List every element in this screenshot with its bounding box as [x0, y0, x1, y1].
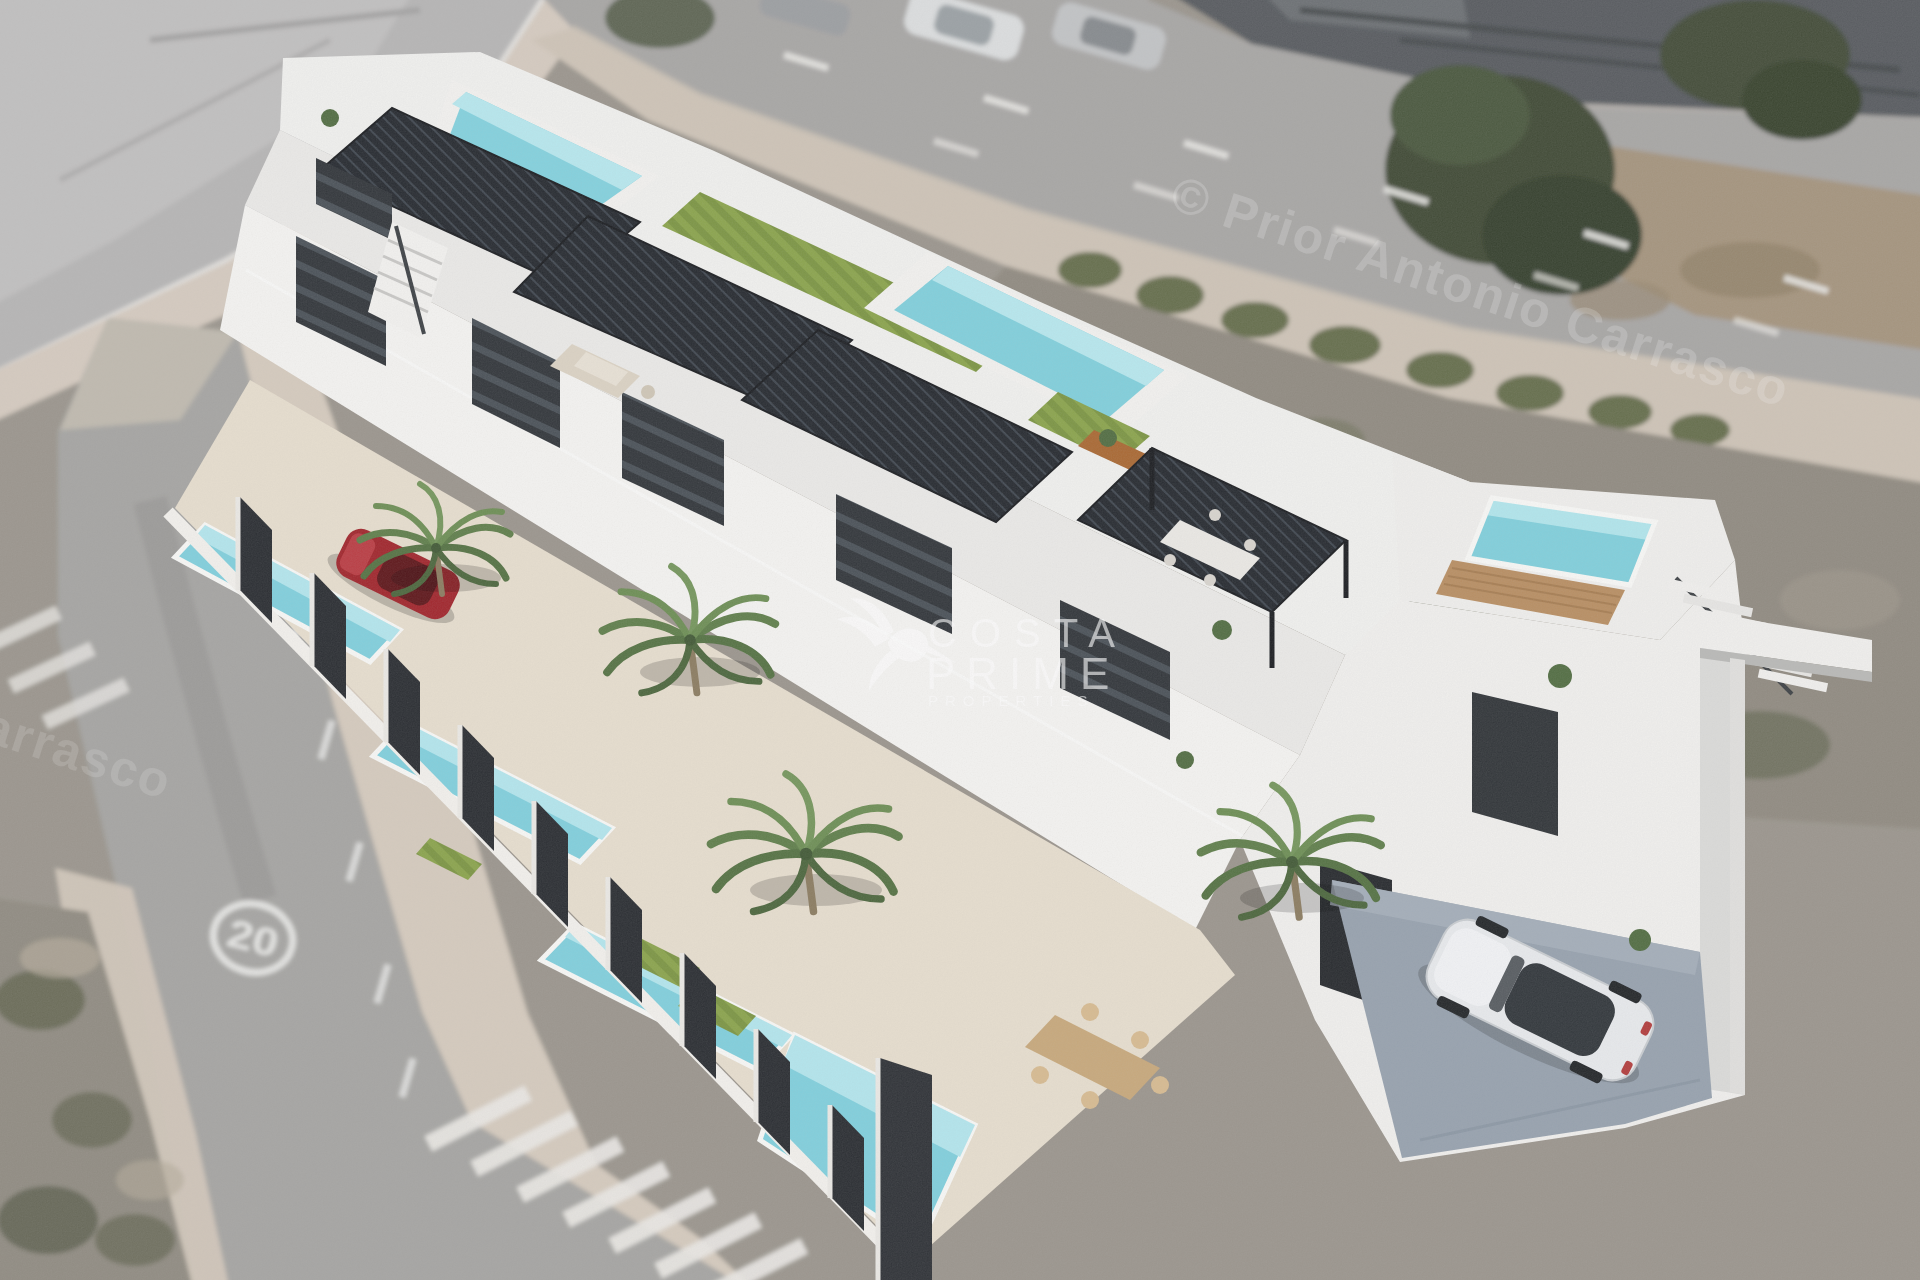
grain-overlay: [0, 0, 1920, 1280]
scene-svg: 20: [0, 0, 1920, 1280]
aerial-render-screenshot: 20: [0, 0, 1920, 1280]
